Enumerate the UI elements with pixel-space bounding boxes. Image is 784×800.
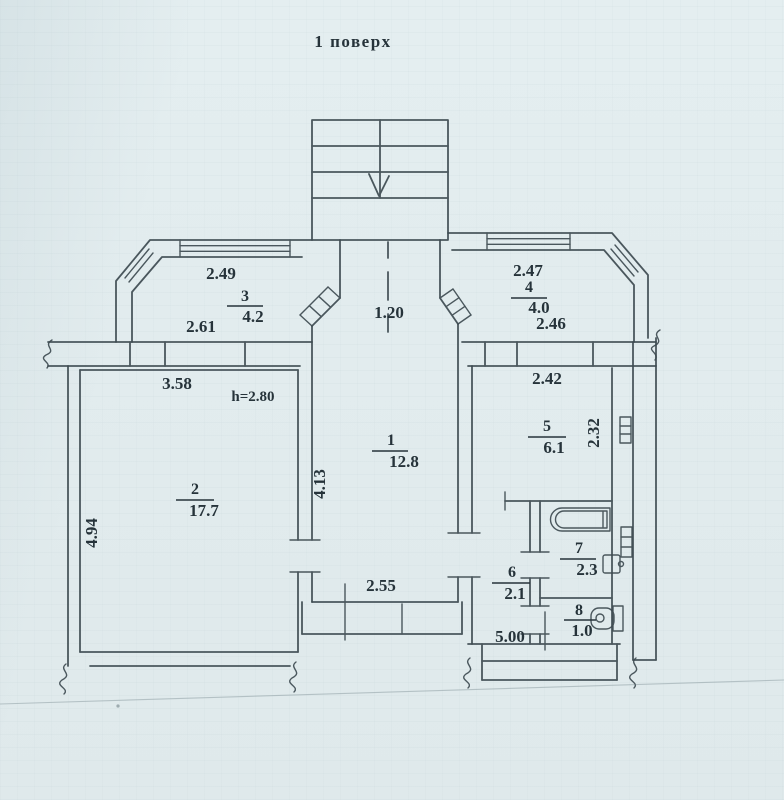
wall-break-marks xyxy=(43,330,660,694)
room-2-area: 17.7 xyxy=(189,501,219,520)
scan-artifacts xyxy=(0,680,784,708)
page-title: 1 поверх xyxy=(314,32,391,51)
window-top-right-icon xyxy=(487,233,570,250)
sink-icon xyxy=(603,555,624,573)
bathtub-icon xyxy=(551,508,611,531)
dim-room2-top: 3.58 xyxy=(162,374,192,393)
room-6-area: 2.1 xyxy=(504,584,525,603)
room-5-number: 5 xyxy=(543,418,551,435)
room-1-number: 1 xyxy=(387,432,395,449)
left-steps-hatch xyxy=(300,287,340,326)
room-8-number: 8 xyxy=(575,602,583,619)
dim-room5-top: 2.42 xyxy=(532,369,562,388)
right-steps-hatch xyxy=(440,289,471,324)
dim-left-wing-top: 2.49 xyxy=(206,264,236,283)
room-3-area: 4.2 xyxy=(242,307,263,326)
right-section-walls xyxy=(468,368,620,680)
room-7-label: 7 2.3 xyxy=(560,540,598,579)
dim-passage-width: 1.20 xyxy=(374,303,404,322)
room-4-number: 4 xyxy=(525,279,533,296)
room-4-label: 4 4.0 xyxy=(511,279,550,317)
toilet-icon xyxy=(591,606,623,631)
exterior-right-wall xyxy=(633,338,656,660)
scanned-floor-plan-page: 1 поверх xyxy=(0,0,784,800)
room-1-label: 1 12.8 xyxy=(372,432,419,471)
staircase xyxy=(312,120,448,240)
room-5-area: 6.1 xyxy=(543,438,564,457)
dim-room1-left: 4.13 xyxy=(310,469,329,499)
dim-room2-left: 4.94 xyxy=(82,518,101,548)
dim-bottom-right: 5.00 xyxy=(495,627,525,646)
top-wall-band xyxy=(48,342,656,366)
room-1-area: 12.8 xyxy=(389,452,419,471)
window-chamfer-right-icon xyxy=(611,245,638,276)
room-7-number: 7 xyxy=(575,540,583,557)
radiator-lower-icon xyxy=(621,527,632,557)
room-3-label: 3 4.2 xyxy=(227,288,264,326)
room-6-number: 6 xyxy=(508,564,516,581)
room-2-number: 2 xyxy=(191,481,199,498)
dim-right-wing-top: 2.47 xyxy=(513,261,543,280)
room-7-area: 2.3 xyxy=(576,560,597,579)
ceiling-height-label: h=2.80 xyxy=(231,389,274,405)
dim-left-wing-bottom: 2.61 xyxy=(186,317,216,336)
room-8-area: 1.0 xyxy=(571,621,592,640)
dim-room5-right: 2.32 xyxy=(584,418,603,448)
room-3-number: 3 xyxy=(241,288,249,305)
room-6-label: 6 2.1 xyxy=(492,564,530,603)
window-top-left-icon xyxy=(180,240,290,257)
room-8-label: 8 1.0 xyxy=(564,602,596,640)
dim-room1-bottom: 2.55 xyxy=(366,576,396,595)
room-5-label: 5 6.1 xyxy=(528,418,566,457)
stair-direction-arrow-icon xyxy=(369,174,389,196)
floor-plan-canvas: 1 поверх xyxy=(0,0,784,800)
room-2-label: 2 17.7 xyxy=(176,481,219,520)
radiator-upper-icon xyxy=(620,417,631,443)
room-4-area: 4.0 xyxy=(528,298,549,317)
